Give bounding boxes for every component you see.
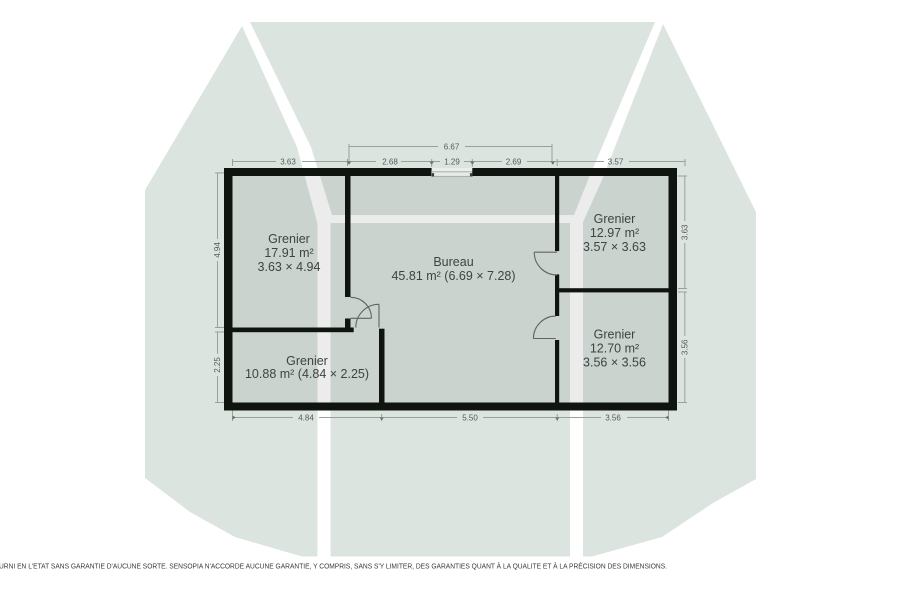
svg-text:Grenier: Grenier — [594, 328, 636, 342]
svg-text:Bureau: Bureau — [433, 255, 473, 269]
svg-text:4.94: 4.94 — [213, 242, 222, 258]
svg-text:3.63 × 4.94: 3.63 × 4.94 — [258, 260, 321, 274]
svg-text:2.25: 2.25 — [213, 357, 222, 373]
svg-text:URNI EN L'ETAT SANS GARANTIE D: URNI EN L'ETAT SANS GARANTIE D'AUCUNE SO… — [0, 562, 667, 571]
svg-text:3.56: 3.56 — [681, 339, 690, 355]
svg-text:1.29: 1.29 — [444, 158, 460, 167]
svg-text:Grenier: Grenier — [594, 212, 636, 226]
svg-text:3.63: 3.63 — [681, 224, 690, 240]
svg-text:3.63: 3.63 — [280, 158, 296, 167]
svg-text:45.81 m² (6.69 × 7.28): 45.81 m² (6.69 × 7.28) — [391, 269, 515, 283]
svg-text:3.56 × 3.56: 3.56 × 3.56 — [583, 356, 646, 370]
svg-text:Grenier: Grenier — [268, 232, 310, 246]
svg-text:5.50: 5.50 — [462, 414, 478, 423]
svg-text:10.88 m² (4.84 × 2.25): 10.88 m² (4.84 × 2.25) — [245, 367, 369, 381]
svg-text:3.56: 3.56 — [605, 414, 621, 423]
svg-text:2.68: 2.68 — [382, 158, 398, 167]
svg-text:17.91 m²: 17.91 m² — [264, 246, 313, 260]
svg-text:Grenier: Grenier — [286, 354, 328, 368]
svg-text:4.84: 4.84 — [298, 414, 314, 423]
svg-text:12.97 m²: 12.97 m² — [590, 226, 639, 240]
svg-text:12.70 m²: 12.70 m² — [590, 342, 639, 356]
svg-text:2.69: 2.69 — [506, 158, 522, 167]
svg-text:3.57: 3.57 — [608, 158, 624, 167]
svg-text:6.67: 6.67 — [444, 143, 460, 152]
svg-text:3.57 × 3.63: 3.57 × 3.63 — [583, 240, 646, 254]
